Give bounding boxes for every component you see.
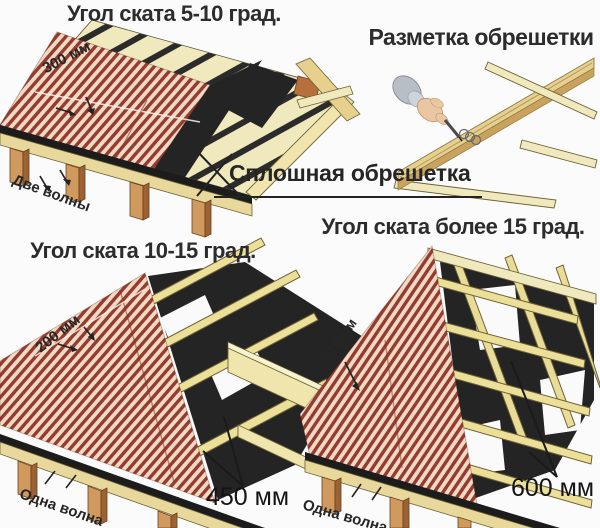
label-spacing-450: 450 мм: [206, 484, 289, 510]
mid-slope-roof-illustration: [0, 238, 368, 528]
batten-middle: [520, 140, 597, 168]
title-mid-slope: Угол ската 10-15 град.: [10, 239, 276, 262]
title-marking: Разметка обрешетки: [362, 25, 600, 49]
title-low-slope: Угол ската 5-10 град.: [48, 2, 300, 25]
label-solid-sheathing: Сплошная обрешетка: [229, 161, 470, 185]
marking-hand: [387, 70, 462, 141]
low-slope-roof-illustration: [0, 20, 354, 237]
label-spacing-600: 600 мм: [511, 475, 594, 501]
diagram-canvas: [0, 0, 600, 528]
pencil: [445, 120, 459, 137]
roofing-lathing-diagram: Угол ската 5-10 град. 300 мм Две волны Р…: [0, 0, 600, 528]
title-steep-slope: Угол ската более 15 град.: [306, 215, 600, 238]
